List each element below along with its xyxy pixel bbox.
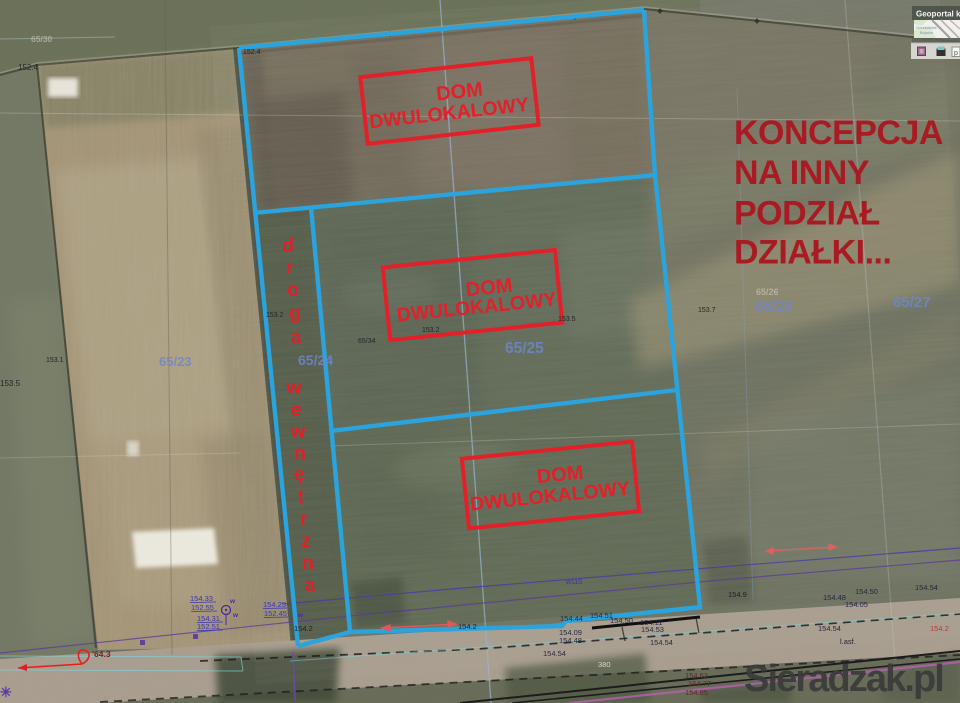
svg-text:e: e xyxy=(291,400,302,421)
svg-text:Geoportal kr: Geoportal kr xyxy=(916,10,960,19)
svg-text:154.33: 154.33 xyxy=(190,594,213,603)
svg-text:PODZIAŁ: PODZIAŁ xyxy=(734,195,880,233)
svg-text:153.5: 153.5 xyxy=(558,316,576,323)
svg-text:a: a xyxy=(291,327,302,348)
svg-text:d: d xyxy=(282,236,294,257)
svg-text:o: o xyxy=(287,280,299,301)
svg-text:NA INNY: NA INNY xyxy=(734,154,870,192)
svg-text:w110: w110 xyxy=(565,579,582,586)
svg-text:154.2: 154.2 xyxy=(294,624,313,633)
svg-text:153.7: 153.7 xyxy=(698,307,716,314)
svg-text:65/27: 65/27 xyxy=(893,294,931,311)
svg-text:380: 380 xyxy=(598,660,611,669)
svg-text:154.50: 154.50 xyxy=(610,616,633,625)
svg-text:r: r xyxy=(300,509,308,530)
svg-text:w: w xyxy=(297,612,304,619)
svg-text:154.53: 154.53 xyxy=(641,625,664,634)
svg-text:ę: ę xyxy=(294,465,305,486)
svg-text:g: g xyxy=(289,303,301,324)
svg-text:154.44: 154.44 xyxy=(560,614,583,623)
svg-text:154.05: 154.05 xyxy=(845,600,868,609)
svg-text:65/30: 65/30 xyxy=(31,34,53,44)
svg-text:152.4: 152.4 xyxy=(243,49,261,56)
svg-text:DZIAŁKI...: DZIAŁKI... xyxy=(734,234,891,272)
svg-text:✳: ✳ xyxy=(0,684,12,700)
svg-text:154.2: 154.2 xyxy=(930,624,949,633)
svg-text:152.45: 152.45 xyxy=(264,609,287,618)
svg-text:154.54: 154.54 xyxy=(915,583,938,592)
svg-text:w: w xyxy=(232,612,239,619)
svg-text:'64.3: '64.3 xyxy=(92,649,111,659)
svg-text:152.4: 152.4 xyxy=(18,63,39,72)
svg-text:154.2: 154.2 xyxy=(458,622,477,631)
svg-text:154.85: 154.85 xyxy=(685,688,708,697)
svg-text:65/24: 65/24 xyxy=(298,352,333,368)
svg-text:65/26: 65/26 xyxy=(755,298,793,315)
svg-text:152.55: 152.55 xyxy=(191,603,214,612)
svg-text:Bujnice: Bujnice xyxy=(920,30,934,35)
svg-text:t: t xyxy=(298,487,305,508)
svg-text:p: p xyxy=(954,50,958,57)
svg-text:154.54: 154.54 xyxy=(650,638,673,647)
svg-text:154.48: 154.48 xyxy=(823,593,846,602)
svg-text:154.54: 154.54 xyxy=(543,649,566,658)
svg-text:n: n xyxy=(294,443,306,464)
svg-text:164.77: 164.77 xyxy=(688,679,711,688)
svg-text:65/25: 65/25 xyxy=(505,340,544,357)
svg-text:z: z xyxy=(301,531,311,552)
svg-text:153.2: 153.2 xyxy=(422,327,440,334)
svg-text:r: r xyxy=(286,258,294,279)
svg-text:153.5: 153.5 xyxy=(0,379,21,388)
svg-text:Sieradzak.pl: Sieradzak.pl xyxy=(744,658,943,700)
svg-text:153.2: 153.2 xyxy=(266,312,284,319)
svg-text:65/23: 65/23 xyxy=(159,354,192,369)
svg-text:l.asf.: l.asf. xyxy=(840,637,856,646)
svg-text:154.48: 154.48 xyxy=(559,636,582,645)
svg-text:154.54: 154.54 xyxy=(818,624,841,633)
svg-text:65/26: 65/26 xyxy=(756,287,779,297)
svg-text:n: n xyxy=(302,553,314,574)
svg-text:65/34: 65/34 xyxy=(358,338,376,345)
svg-text:153.1: 153.1 xyxy=(46,357,64,364)
svg-text:154.25: 154.25 xyxy=(263,600,286,609)
svg-text:152.51: 152.51 xyxy=(197,622,220,631)
svg-text:154.9: 154.9 xyxy=(728,590,747,599)
svg-text:154.50: 154.50 xyxy=(855,587,878,596)
svg-text:w: w xyxy=(229,598,236,605)
svg-text:w: w xyxy=(290,422,306,443)
svg-text:a: a xyxy=(305,575,316,596)
svg-text:KONCEPCJA: KONCEPCJA xyxy=(734,114,943,152)
svg-text:w: w xyxy=(286,378,302,399)
